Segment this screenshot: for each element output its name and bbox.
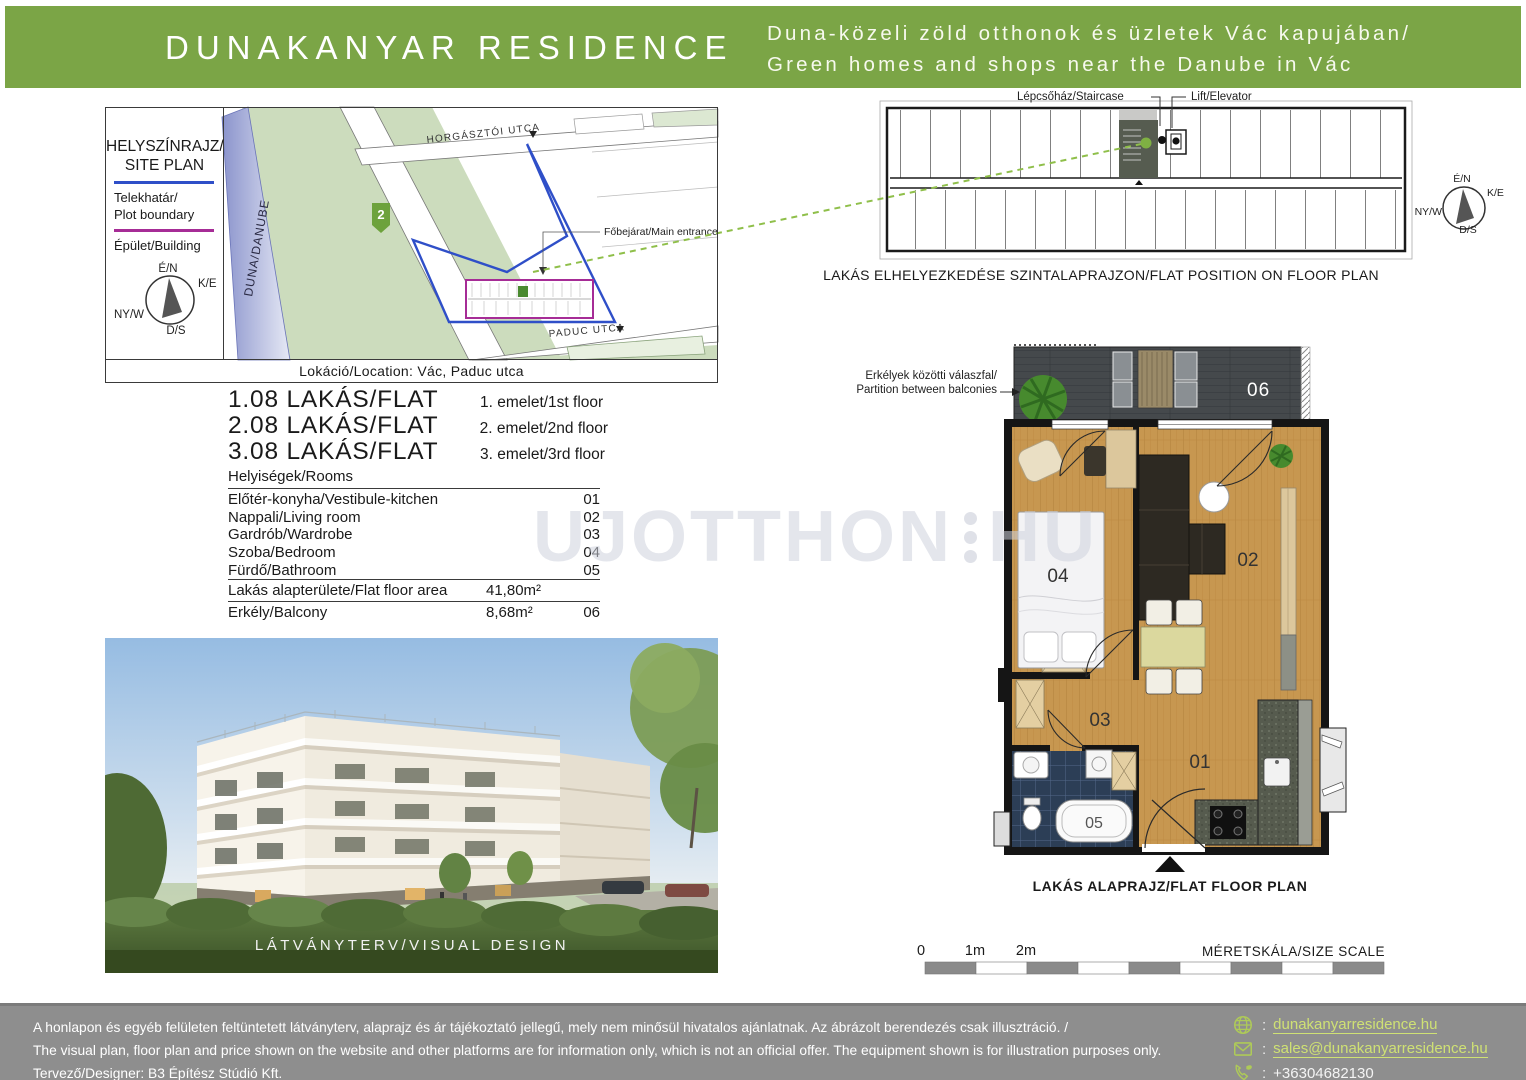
compass2-s: D/S	[1459, 224, 1477, 236]
flyer-page: 2 HORGÁSZTÓI UTCA PADUC UTCA DUNA/DANUBE…	[0, 0, 1526, 1080]
footer: A honlapon és egyéb felületen feltüntete…	[0, 1003, 1526, 1080]
staircase-block	[1119, 109, 1157, 120]
header-banner: DUNAKANYAR RESIDENCE Duna-közeli zöld ot…	[5, 6, 1521, 88]
balcony-value: 8,68m²	[486, 604, 558, 621]
website-link[interactable]: dunakanyarresidence.hu	[1273, 1016, 1437, 1034]
legend-title-en: SITE PLAN	[106, 156, 223, 175]
scale-caption: MÉRETSKÁLA/SIZE SCALE	[1202, 944, 1385, 959]
balcony-row: Erkély/Balcony 8,68m² 06	[228, 601, 600, 623]
location-label: Lokáció/Location: Vác, Paduc utca	[106, 359, 717, 382]
flat-plan-caption: LAKÁS ALAPRAJZ/FLAT FLOOR PLAN	[1033, 878, 1308, 894]
flat-row: 1.08 LAKÁS/FLAT 1. emelet/1st floor	[228, 386, 608, 412]
table-row: Gardrób/Wardrobe 03	[228, 526, 600, 544]
disclaimer-hu: A honlapon és egyéb felületen feltüntete…	[33, 1016, 1161, 1039]
floor-area-row: Lakás alapterülete/Flat floor area 41,80…	[228, 579, 600, 601]
partition-label-en: Partition between balconies	[855, 383, 997, 397]
designer-credit: Tervező/Designer: B3 Építész Stúdió Kft.	[33, 1062, 1161, 1080]
flat-floor: 2. emelet/2nd floor	[480, 420, 608, 438]
scale-0: 0	[917, 943, 925, 959]
rooms-table: Helyiségek/Rooms Előtér-konyha/Vestibule…	[228, 468, 600, 623]
flat-name: 3.08 LAKÁS/FLAT	[228, 438, 480, 466]
compass2-n: É/N	[1453, 172, 1471, 185]
table-row: Szoba/Bedroom 04	[228, 544, 600, 562]
table-row: Nappali/Living room 02	[228, 509, 600, 527]
room-code: 05	[583, 562, 600, 579]
phone-number[interactable]: +36304682130	[1273, 1065, 1374, 1080]
tagline-en: Green homes and shops near the Danube in…	[767, 49, 1411, 80]
legend-title-hu: HELYSZÍNRAJZ/	[106, 137, 223, 156]
flat-row: 2.08 LAKÁS/FLAT 2. emelet/2nd floor	[228, 412, 608, 438]
legend-building: Épület/Building	[114, 237, 201, 254]
contact-block: : dunakanyarresidence.hu : sales@dunakan…	[1232, 1013, 1488, 1080]
site-plan-legend: HELYSZÍNRAJZ/ SITE PLAN Telekhatár/ Plot…	[106, 108, 224, 360]
rooms-header: Helyiségek/Rooms	[228, 468, 600, 489]
tagline-hu: Duna-közeli zöld otthonok és üzletek Vác…	[767, 18, 1411, 49]
scale-2m: 2m	[1016, 943, 1036, 959]
phone-icon	[1232, 1062, 1254, 1080]
plot-boundary-swatch	[114, 181, 214, 184]
tagline: Duna-közeli zöld otthonok és üzletek Vác…	[767, 18, 1411, 80]
entrance-arrow	[1155, 856, 1185, 872]
highlighted-flat	[1119, 120, 1158, 178]
flat-name: 2.08 LAKÁS/FLAT	[228, 412, 480, 440]
phone-row: : +36304682130	[1232, 1061, 1488, 1080]
room-label: Fürdő/Bathroom	[228, 562, 486, 579]
separator: :	[1262, 1017, 1266, 1034]
floor-area-value: 41,80m²	[486, 582, 558, 599]
floor-position-strip: LAKÁS ELHELYEZKEDÉSE SZINTALAPRAJZON/FLA…	[823, 97, 1412, 283]
legend-title: HELYSZÍNRAJZ/ SITE PLAN	[106, 137, 223, 175]
balcony-plant	[1019, 375, 1067, 423]
room-label: Nappali/Living room	[228, 509, 486, 526]
building-swatch	[114, 229, 214, 232]
table-row: Előtér-konyha/Vestibule-kitchen 01	[228, 491, 600, 509]
scale-1m: 1m	[965, 943, 985, 959]
balcony-label: Erkély/Balcony	[228, 604, 486, 621]
room-02-label: 02	[1237, 550, 1258, 571]
table-row: Fürdő/Bathroom 05	[228, 561, 600, 579]
website-row: : dunakanyarresidence.hu	[1232, 1013, 1488, 1037]
strip-compass: É/N K/E NY/W D/S	[1415, 172, 1504, 236]
legend-plot-hu: Telekhatár/	[114, 189, 194, 206]
partition-label-hu: Erkélyek közötti válaszfal/	[855, 369, 997, 383]
visual-caption: LÁTVÁNYTERV/VISUAL DESIGN	[255, 937, 569, 954]
room-03-label: 03	[1089, 710, 1110, 731]
room-04-label: 04	[1047, 566, 1069, 587]
balcony-furniture	[1113, 350, 1197, 408]
email-link[interactable]: sales@dunakanyarresidence.hu	[1273, 1040, 1488, 1058]
room-label: Előtér-konyha/Vestibule-kitchen	[228, 491, 486, 508]
visual-design-photo: LÁTVÁNYTERV/VISUAL DESIGN	[67, 638, 750, 973]
email-row: : sales@dunakanyarresidence.hu	[1232, 1037, 1488, 1061]
staircase-label: Lépcsőház/Staircase	[1017, 90, 1124, 104]
footer-text: A honlapon és egyéb felületen feltüntete…	[33, 1016, 1161, 1080]
room-06-label: 06	[1247, 380, 1270, 401]
globe-icon	[1232, 1014, 1254, 1036]
room-code: 04	[583, 544, 600, 561]
flat-floor: 1. emelet/1st floor	[480, 394, 603, 412]
flat-list: 1.08 LAKÁS/FLAT 1. emelet/1st floor 2.08…	[228, 386, 608, 464]
flat-name: 1.08 LAKÁS/FLAT	[228, 386, 480, 414]
envelope-icon	[1232, 1038, 1254, 1060]
project-title: DUNAKANYAR RESIDENCE	[165, 29, 665, 67]
scale-bar: 0 1m 2m MÉRETSKÁLA/SIZE SCALE	[917, 943, 1385, 974]
strip-caption: LAKÁS ELHELYEZKEDÉSE SZINTALAPRAJZON/FLA…	[823, 267, 1379, 283]
site-plan-panel: HELYSZÍNRAJZ/ SITE PLAN Telekhatár/ Plot…	[105, 107, 718, 383]
room-label: Gardrób/Wardrobe	[228, 526, 486, 543]
compass2-e: K/E	[1487, 187, 1504, 199]
separator: :	[1262, 1041, 1266, 1058]
lift-label: Lift/Elevator	[1191, 90, 1252, 104]
separator: :	[1262, 1065, 1266, 1080]
balcony-code: 06	[583, 604, 600, 621]
room-01-label: 01	[1189, 752, 1210, 773]
partition-label: Erkélyek közötti válaszfal/ Partition be…	[855, 369, 997, 397]
compass2-w: NY/W	[1415, 206, 1443, 218]
legend-plot-en: Plot boundary	[114, 206, 194, 223]
room-label: Szoba/Bedroom	[228, 544, 486, 561]
flat-row: 3.08 LAKÁS/FLAT 3. emelet/3rd floor	[228, 438, 608, 464]
disclaimer-en: The visual plan, floor plan and price sh…	[33, 1039, 1161, 1062]
room-05-label: 05	[1085, 815, 1103, 832]
legend-plot: Telekhatár/ Plot boundary	[114, 189, 194, 223]
flat-floor-plan: 06	[994, 345, 1346, 894]
room-code: 03	[583, 526, 600, 543]
room-code: 02	[583, 509, 600, 526]
floor-area-label: Lakás alapterülete/Flat floor area	[228, 582, 486, 599]
room-code: 01	[583, 491, 600, 508]
flat-floor: 3. emelet/3rd floor	[480, 446, 605, 464]
